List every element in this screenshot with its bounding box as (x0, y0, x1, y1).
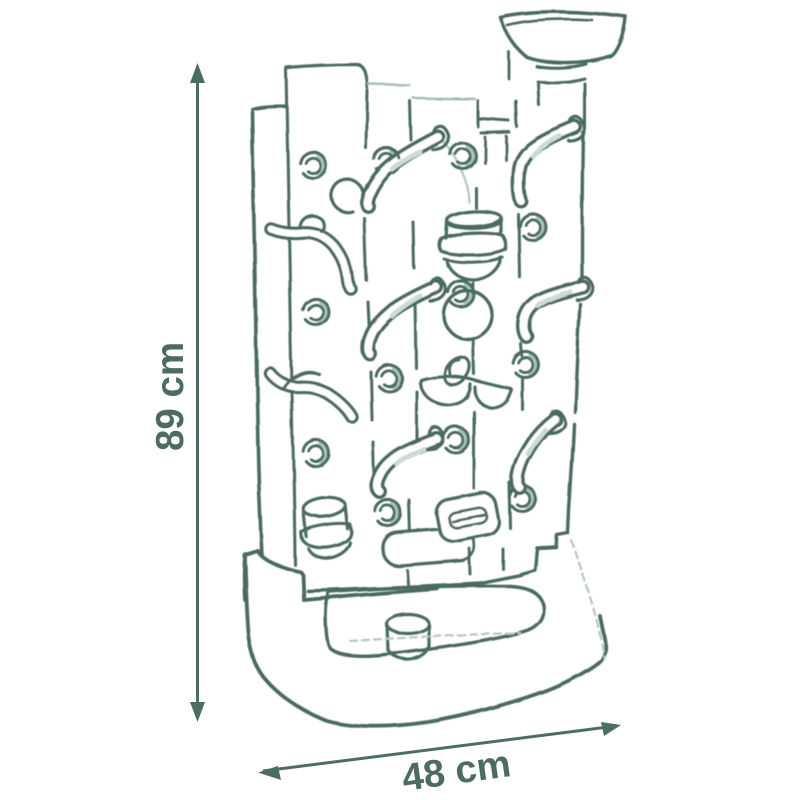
svg-text:89 cm: 89 cm (149, 342, 192, 451)
